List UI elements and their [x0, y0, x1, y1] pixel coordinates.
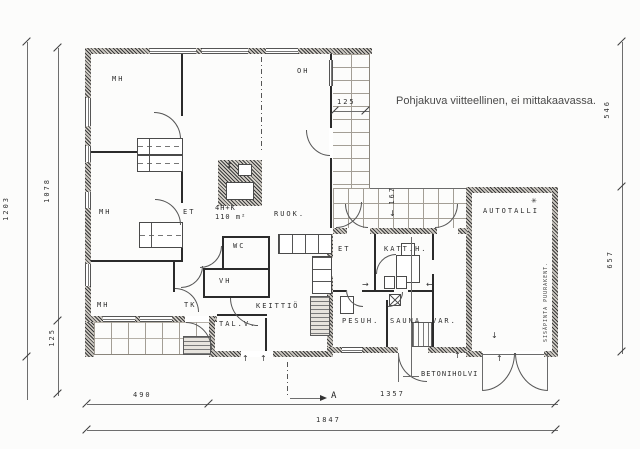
dimline-left-inner: [58, 48, 59, 396]
door-arc-vh: [181, 266, 203, 288]
iwall-mh2-mh3: [91, 260, 181, 262]
garage-leaf-line-left: [482, 353, 483, 391]
window-top-3: [266, 48, 298, 54]
dimension-label-bottom-left: 490: [133, 392, 152, 400]
iwall-vh-top: [203, 268, 270, 270]
room-label-pesuh: PESUH.: [342, 318, 379, 326]
section-line: [287, 362, 288, 398]
wall-wing-top-1: [333, 228, 347, 234]
garage-wall-note: SISÄPINTA PUURAKENT.: [543, 212, 549, 342]
room-label-et-hall: ET: [183, 209, 195, 217]
iwall-wc-left: [222, 238, 224, 268]
room-label-keittio: KEITTIÖ: [256, 303, 300, 311]
garage-door-leaf-right: [515, 353, 548, 391]
room-label-autotalli: AUTOTALLI: [483, 208, 539, 216]
wall-wing-top-3: [458, 228, 468, 234]
door-arc-wc: [200, 246, 222, 268]
window-left-3: [85, 192, 91, 208]
wall-garage-left: [466, 193, 472, 351]
plan-note: Pohjakuva viitteellinen, ei mittakaavass…: [396, 95, 596, 107]
dimension-label-left-lower: 125: [49, 328, 57, 347]
door-arc-et2-katth: [376, 254, 396, 274]
section-arrowhead-icon: [320, 395, 327, 401]
direction-arrow-icon-garage-down: ↓: [491, 332, 498, 340]
betoniholvi-leader-v: [411, 237, 412, 377]
iwall-wc-top: [222, 236, 270, 238]
basement-stairs: [310, 296, 330, 336]
dimension-label-bottom-total: 1847: [316, 417, 341, 425]
window-left-2: [85, 146, 91, 162]
window-left-4: [85, 264, 91, 286]
iwall-pesuh-sauna: [386, 300, 388, 347]
dimension-label-top-right: 125: [337, 99, 356, 107]
unit-label-line1: 4H+K: [215, 205, 236, 213]
room-label-vh: VH: [219, 278, 231, 286]
dimension-label-left-outer: 1203: [3, 196, 11, 221]
room-label-tal-v: TAL.V.: [219, 321, 256, 329]
section-label: A: [331, 391, 336, 401]
direction-arrow-icon-flue-updown: ↕: [226, 162, 233, 170]
room-label-sauna: SAUNA: [390, 318, 421, 326]
room-label-katt-h: KATT.H.: [384, 246, 428, 254]
window-wing-south: [342, 347, 362, 353]
cold-space-symbol-icon: ✳: [531, 198, 537, 205]
wall-wing-top-2: [370, 228, 437, 234]
room-label-mh-middle: MH: [99, 209, 111, 217]
direction-arrow-icon-var-left: ←: [426, 281, 433, 289]
direction-arrow-icon-entry-up-2: ↑: [260, 355, 267, 363]
dimension-label-bottom-mid: 1357: [380, 391, 405, 399]
kitchen-counter-right: [312, 256, 332, 294]
kitchen-counter-top: [278, 234, 332, 254]
direction-arrow-icon-dim167-down: ↓: [389, 210, 396, 218]
room-label-ruok: RUOK.: [274, 211, 305, 219]
betoniholvi-leader-h: [403, 376, 419, 377]
iwall-mh1-right: [181, 54, 183, 116]
dimline-bottom-2: [87, 430, 558, 431]
door-arc-oh-terrace: [306, 130, 330, 156]
section-arrow-line: [290, 398, 321, 399]
window-top-2: [202, 48, 248, 54]
oh-et-boundary-dashline: [261, 57, 262, 153]
room-label-wc: WC: [233, 243, 245, 251]
room-label-oh: OH: [297, 68, 309, 76]
dimline-right: [622, 42, 623, 354]
wardrobe-mh2: [139, 222, 183, 248]
dimline-left-outer: [27, 42, 28, 400]
wall-garage-top: [466, 187, 558, 193]
door-arc-mh2: [155, 199, 181, 225]
room-label-var: VAR.: [432, 318, 457, 326]
fireplace-flue: [238, 164, 252, 176]
iwall-var-left-upper: [432, 234, 434, 260]
door-leaf-exit-south: [398, 353, 399, 382]
wall-garage-right: [552, 187, 558, 357]
room-label-mh-bottom: MH: [97, 302, 109, 310]
wall-garage-bottom-left: [466, 351, 482, 357]
iwall-vh-left: [203, 270, 205, 296]
room-label-et-wing: ET: [338, 246, 350, 254]
dimension-label-right-upper: 546: [604, 100, 612, 119]
garage-leaf-line-right: [547, 353, 548, 391]
room-label-mh-top: MH: [112, 76, 124, 84]
dimline-bottom-1: [87, 404, 558, 405]
floor-plan-canvas: A BETONIHOLVI SISÄPINTA PUURAKENT. ✳ 4H+…: [0, 0, 640, 449]
dimension-label-left-inner: 1078: [44, 178, 52, 203]
wall-terrace-bl-edge: [85, 322, 94, 357]
unit-label-line2: 110 m²: [215, 214, 246, 222]
window-top-1: [150, 48, 196, 54]
wardrobe-mh1-a: [137, 138, 183, 155]
sauna-benches: [412, 322, 432, 347]
wardrobe-mh1-b: [137, 155, 183, 172]
direction-arrow-icon-et2-right: →: [362, 281, 369, 289]
utility-box-2: [396, 276, 407, 289]
iwall-wc-right: [268, 238, 270, 296]
betoniholvi-label: BETONIHOLVI: [421, 371, 478, 379]
dimension-label-right-lower: 657: [607, 250, 615, 269]
iwall-talv-right: [265, 318, 267, 351]
terrace-band-topline: [370, 188, 466, 189]
wall-wing-south-left: [327, 347, 398, 353]
door-arc-mh1: [154, 112, 181, 139]
utility-box-1: [384, 276, 395, 289]
iwall-wing-mid-1: [333, 290, 346, 292]
window-left-1: [85, 98, 91, 126]
iwall-et2-katth: [374, 234, 376, 292]
dimension-label-terrace: 167: [389, 186, 397, 205]
direction-arrow-icon-entry-up-3: ↑: [454, 352, 461, 360]
direction-arrow-icon-garage-up: ↑: [496, 355, 503, 363]
fireplace-opening: [226, 182, 254, 200]
room-label-tk: TK: [184, 302, 196, 310]
direction-arrow-icon-entry-up-1: ↑: [242, 355, 249, 363]
terrace-east-centerline: [351, 54, 352, 188]
